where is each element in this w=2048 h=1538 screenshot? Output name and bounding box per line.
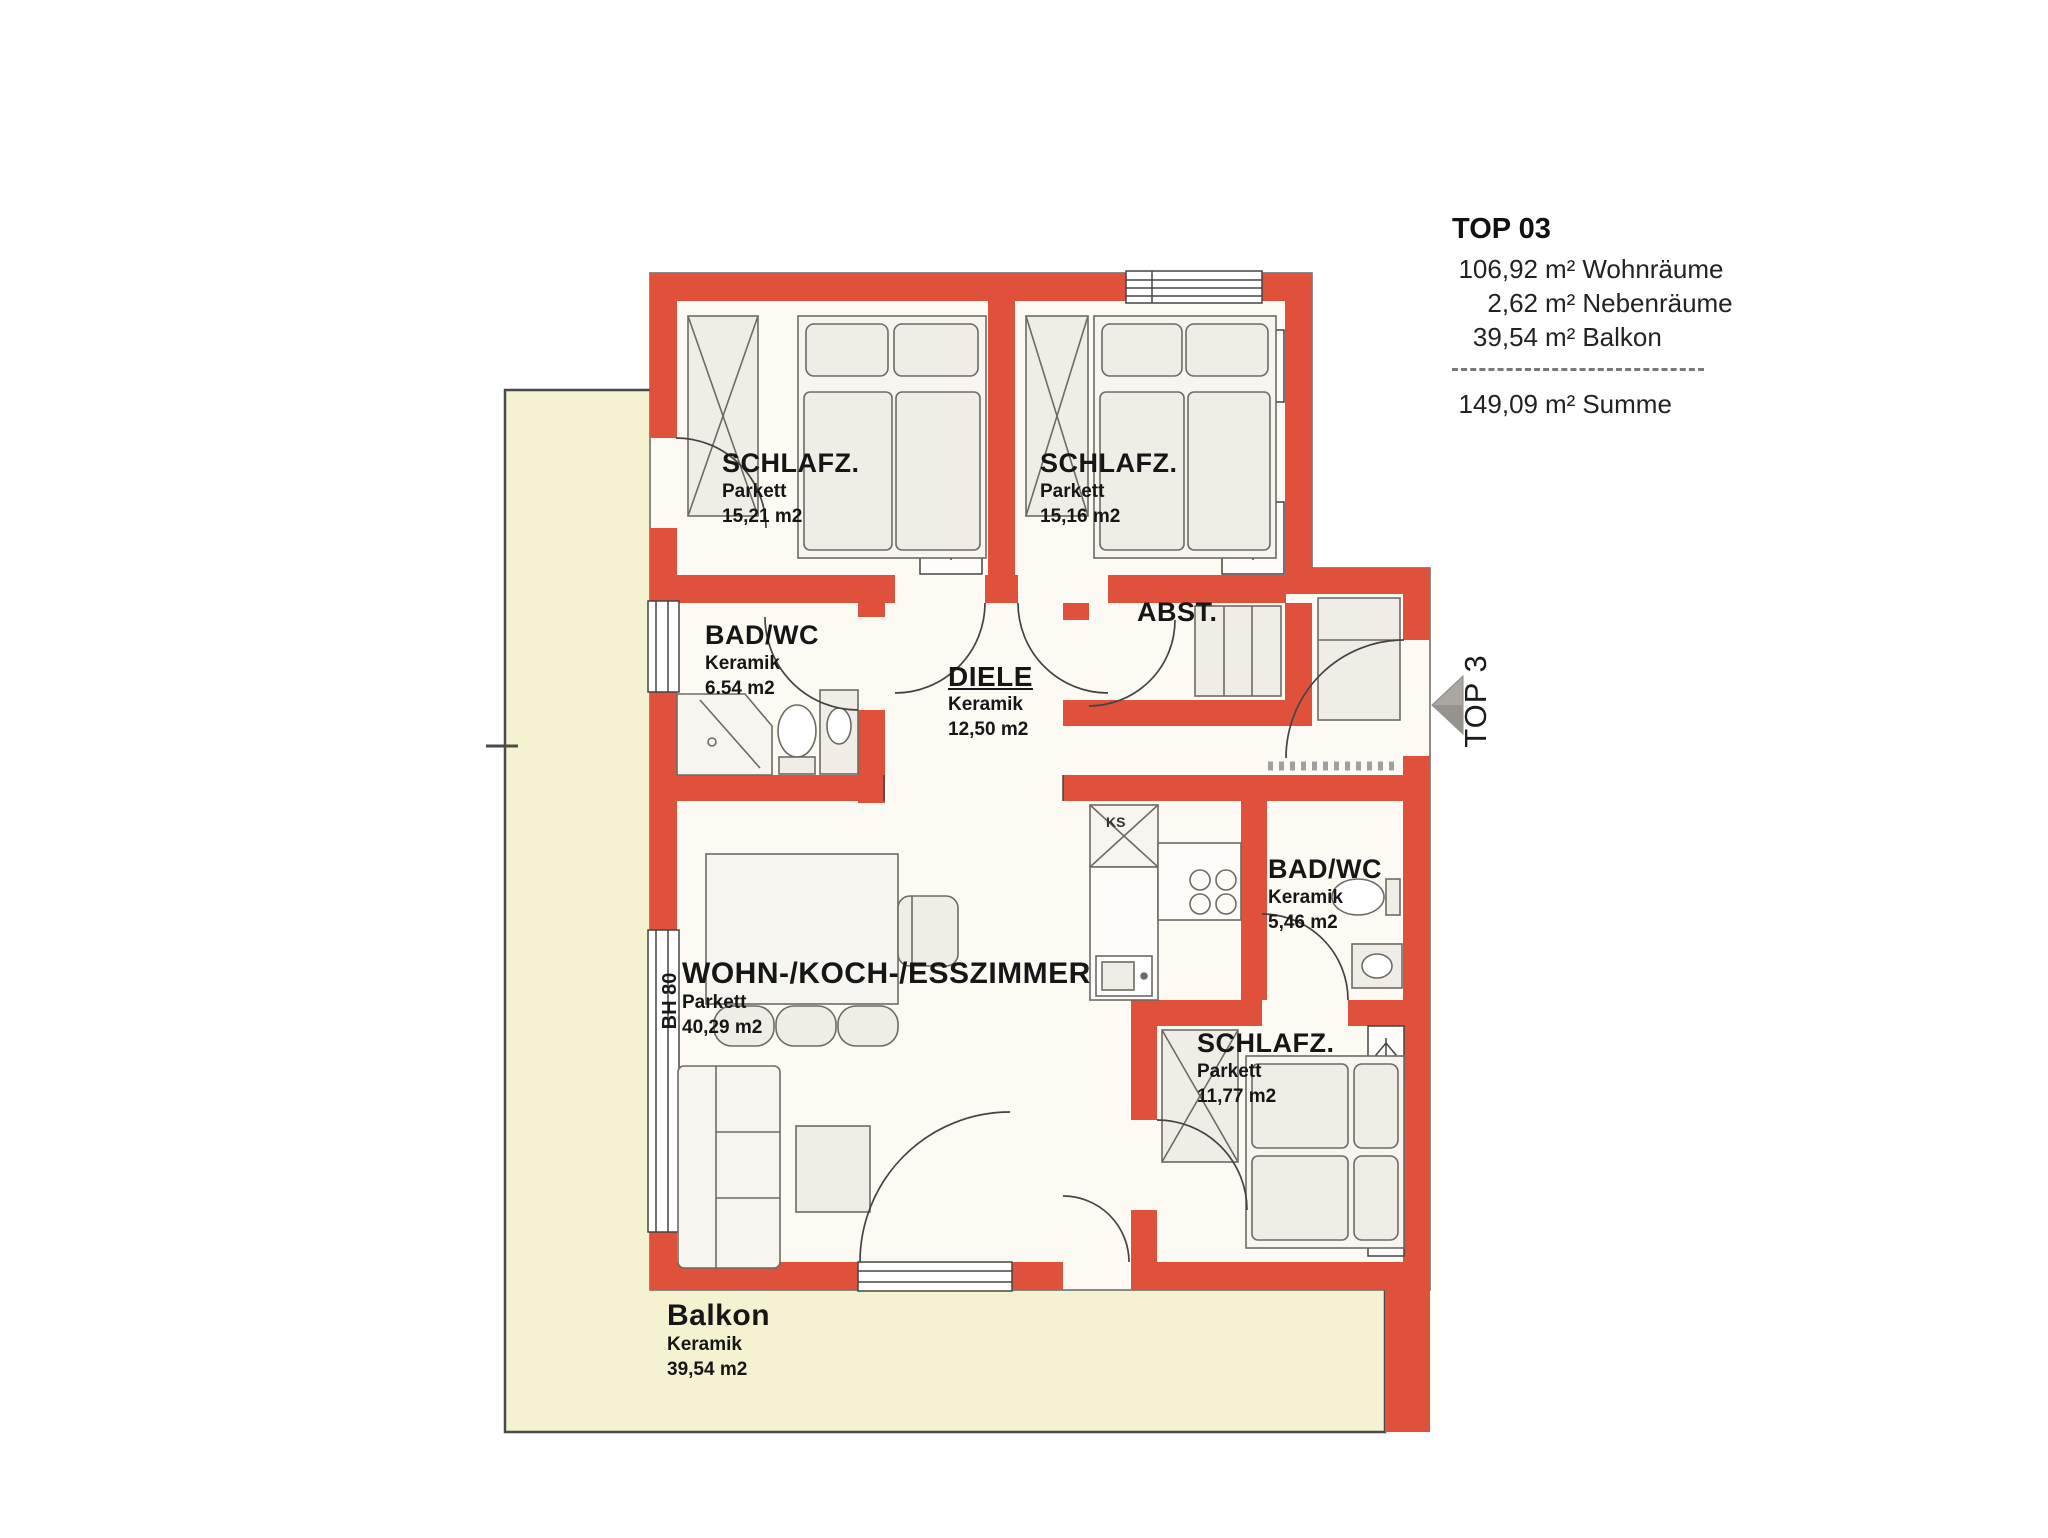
toilet-bad1 — [778, 705, 816, 774]
summary-value: 149,09 — [1452, 387, 1538, 421]
room-area: 40,29 m2 — [682, 1016, 1091, 1041]
summary-unit: m² — [1545, 286, 1575, 320]
room-label-schlafz1: SCHLAFZ. Parkett 15,21 m2 — [722, 448, 859, 529]
kitchen-sink — [1096, 956, 1152, 996]
room-name: DIELE — [948, 660, 1033, 693]
room-label-diele: DIELE Keramik 12,50 m2 — [948, 660, 1033, 742]
room-label-schlafz3: SCHLAFZ. Parkett 11,77 m2 — [1197, 1028, 1334, 1109]
summary-total-line: 149,09m²Summe — [1452, 387, 1782, 421]
room-floor: Keramik — [705, 652, 819, 677]
room-name: BAD/WC — [1268, 854, 1382, 886]
summary-unit: m² — [1545, 320, 1575, 354]
room-floor: Keramik — [1268, 886, 1382, 911]
room-area: 39,54 m2 — [667, 1358, 770, 1383]
summary-label: Summe — [1582, 387, 1672, 421]
room-area: 15,16 m2 — [1040, 505, 1177, 530]
room-label-bad1: BAD/WC Keramik 6.54 m2 — [705, 620, 819, 701]
summary-line: 39,54m²Balkon — [1452, 320, 1782, 354]
room-label-schlafz2: SCHLAFZ. Parkett 15,16 m2 — [1040, 448, 1177, 529]
window-bad1 — [648, 601, 679, 692]
summary-line: 2,62m²Nebenräume — [1452, 286, 1782, 320]
room-name: ABST. — [1137, 597, 1218, 629]
window-top-wall — [1126, 271, 1262, 303]
room-name: WOHN-/KOCH-/ESSZIMMER — [682, 956, 1091, 991]
room-floor: Keramik — [667, 1333, 770, 1358]
sofa — [678, 1066, 780, 1268]
room-area: 12,50 m2 — [948, 718, 1033, 743]
summary-unit: m² — [1545, 252, 1575, 286]
wardrobe-hall — [1318, 598, 1400, 720]
floorplan-page: SCHLAFZ. Parkett 15,21 m2 SCHLAFZ. Parke… — [0, 0, 2048, 1538]
balcony-sliding-door — [858, 1262, 1012, 1291]
summary-value: 2,62 — [1452, 286, 1538, 320]
room-floor: Parkett — [682, 991, 1091, 1016]
summary-value: 39,54 — [1452, 320, 1538, 354]
summary-label: Wohnräume — [1582, 252, 1723, 286]
room-floor: Parkett — [1040, 480, 1177, 505]
summary-label: Nebenräume — [1582, 286, 1732, 320]
unit-title: TOP 03 — [1452, 212, 1782, 246]
unit-entrance-label: TOP 3 — [1458, 640, 1492, 762]
washbasin-bad1 — [820, 690, 858, 774]
room-name: SCHLAFZ. — [722, 448, 859, 480]
room-name: BAD/WC — [705, 620, 819, 652]
room-name: Balkon — [667, 1298, 770, 1333]
room-name: SCHLAFZ. — [1197, 1028, 1334, 1060]
area-summary: TOP 03 106,92m²Wohnräume 2,62m²Nebenräum… — [1452, 212, 1782, 421]
summary-line: 106,92m²Wohnräume — [1452, 252, 1782, 286]
summary-label: Balkon — [1582, 320, 1662, 354]
fridge-ks-label: KS — [1106, 814, 1125, 830]
room-label-abst: ABST. — [1137, 597, 1218, 629]
summary-unit: m² — [1545, 387, 1575, 421]
room-label-balkon: Balkon Keramik 39,54 m2 — [667, 1298, 770, 1383]
room-area: 5,46 m2 — [1268, 911, 1382, 936]
summary-separator — [1452, 368, 1704, 371]
room-floor: Parkett — [722, 480, 859, 505]
room-name: SCHLAFZ. — [1040, 448, 1177, 480]
room-area: 6.54 m2 — [705, 677, 819, 702]
room-label-wohn: WOHN-/KOCH-/ESSZIMMER Parkett 40,29 m2 — [682, 956, 1091, 1041]
room-area: 11,77 m2 — [1197, 1085, 1334, 1110]
room-area: 15,21 m2 — [722, 505, 859, 530]
parapet-height-label: BH 80 — [659, 941, 685, 1061]
room-floor: Keramik — [948, 693, 1033, 718]
washbasin-bad2 — [1352, 944, 1402, 988]
summary-value: 106,92 — [1452, 252, 1538, 286]
side-table — [796, 1126, 870, 1212]
room-floor: Parkett — [1197, 1060, 1334, 1085]
room-label-bad2: BAD/WC Keramik 5,46 m2 — [1268, 854, 1382, 935]
